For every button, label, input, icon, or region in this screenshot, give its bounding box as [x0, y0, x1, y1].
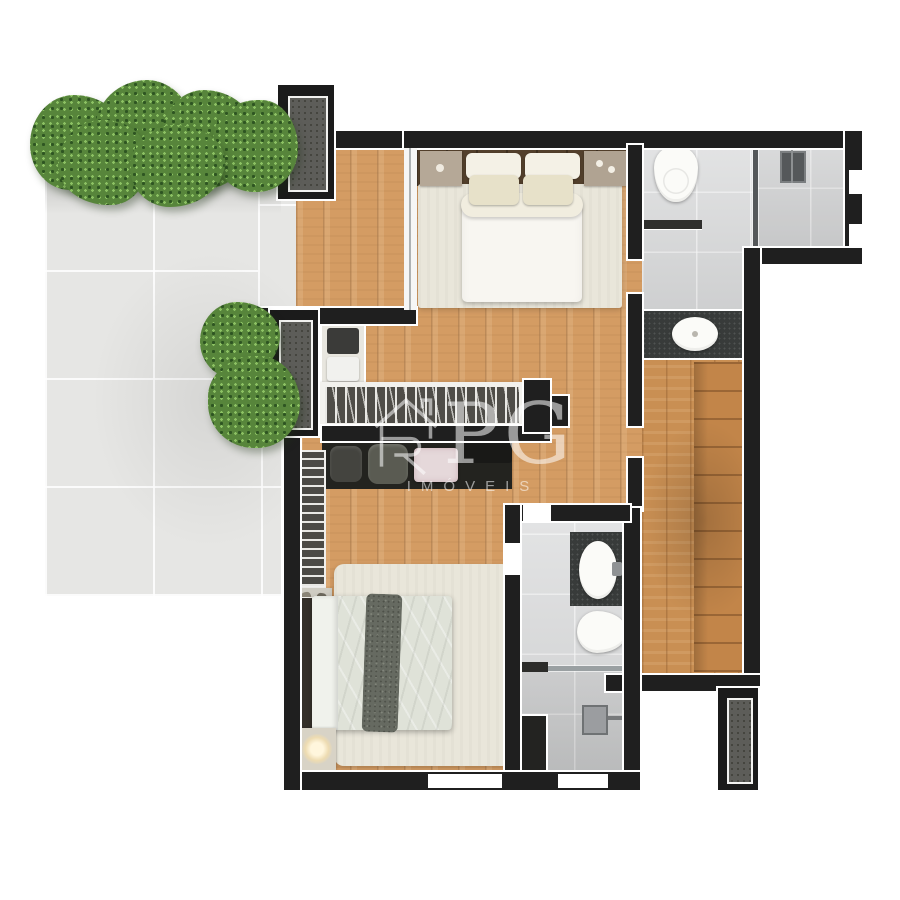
bathroom1-glass-partition [753, 147, 758, 247]
wall-stub-hall [552, 396, 568, 426]
window-bottom-2 [558, 774, 608, 788]
wall-bath2-right [624, 508, 640, 792]
window-west-suite1 [404, 148, 417, 310]
bathroom1-shower-fixture [780, 151, 806, 183]
wall-divider-c [628, 458, 642, 510]
wall-rack-column [524, 380, 550, 432]
storage-bag-2 [368, 444, 408, 484]
bathroom1-half-wall [642, 220, 702, 229]
door-gap-bath2-top [523, 505, 551, 521]
storage-item-dark [462, 443, 512, 463]
bathroom2-partition-wall [520, 662, 548, 672]
wall-divider-b [628, 294, 642, 426]
bathroom2-shower-fixture [582, 705, 608, 735]
suite1-nightstand-right-decor [596, 160, 603, 167]
suite1-pillow-front-right [523, 175, 573, 205]
closet-shading [642, 420, 744, 620]
ac-duct-bottomright-core [727, 698, 753, 784]
hedge-bush-4 [213, 100, 298, 192]
storage-box-white [414, 448, 458, 482]
terrace-bush-2 [208, 356, 300, 448]
bathroom2-shower-handle [608, 716, 624, 720]
vertical-clothes-rack [296, 452, 324, 586]
towel-dark [327, 328, 359, 354]
wall-shower-bottom [754, 248, 862, 264]
wall-nook-top [330, 131, 414, 148]
wall-bedroom2-left [284, 438, 300, 790]
door-gap-bath2-left [505, 543, 520, 575]
floor-plan-canvas: PG IMÓVEIS [0, 0, 900, 900]
suite1-nightstand-right [584, 151, 628, 186]
bathroom1-shower-hose [791, 145, 793, 183]
bedroom2-headboard [300, 598, 312, 728]
suite1-nightstand-left-decor [436, 164, 444, 172]
long-clothes-rack-hangers [325, 387, 519, 423]
bathroom1-toilet-seat-line [663, 168, 689, 194]
storage-bag-1 [330, 446, 362, 482]
wall-divider-a [628, 145, 642, 259]
wall-under-rack [322, 426, 550, 441]
niche-right-1 [849, 170, 862, 194]
vanity-drain [692, 331, 698, 337]
bathroom2-faucet [612, 562, 622, 576]
wall-right-middle [744, 248, 760, 691]
bedroom2-pillows [312, 596, 338, 730]
niche-right-2 [849, 224, 862, 248]
towel-white [327, 357, 359, 381]
bedroom2-lamp-glow [302, 734, 332, 764]
window-bottom-1 [428, 774, 502, 788]
bedroom2-fur-throw [362, 593, 403, 732]
suite1-pillow-front-left [469, 175, 519, 205]
